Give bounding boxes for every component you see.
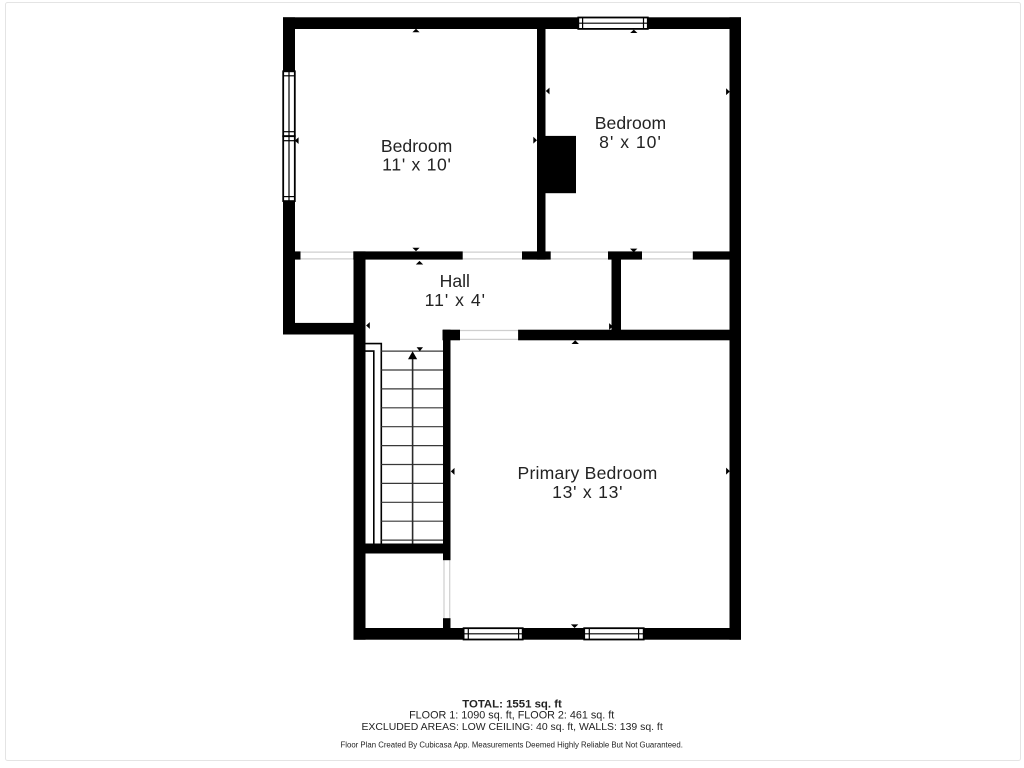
svg-text:Bedroom: Bedroom — [595, 113, 666, 133]
svg-text:FLOOR 1: 1090 sq. ft, FLOOR 2:: FLOOR 1: 1090 sq. ft, FLOOR 2: 461 sq. f… — [409, 710, 614, 722]
svg-text:Primary Bedroom: Primary Bedroom — [518, 463, 658, 483]
svg-text:11' x 4': 11' x 4' — [425, 290, 486, 310]
svg-text:11' x 10': 11' x 10' — [382, 154, 451, 174]
svg-text:13' x 13': 13' x 13' — [552, 482, 623, 502]
svg-text:Floor Plan Created By Cubicasa: Floor Plan Created By Cubicasa App. Meas… — [341, 741, 683, 750]
svg-text:Hall: Hall — [440, 271, 470, 291]
svg-text:TOTAL: 1551 sq. ft: TOTAL: 1551 sq. ft — [462, 698, 562, 710]
svg-text:8' x 10': 8' x 10' — [599, 132, 662, 152]
svg-text:EXCLUDED AREAS: LOW CEILING: 4: EXCLUDED AREAS: LOW CEILING: 40 sq. ft, … — [361, 722, 662, 733]
svg-text:Bedroom: Bedroom — [381, 136, 452, 156]
